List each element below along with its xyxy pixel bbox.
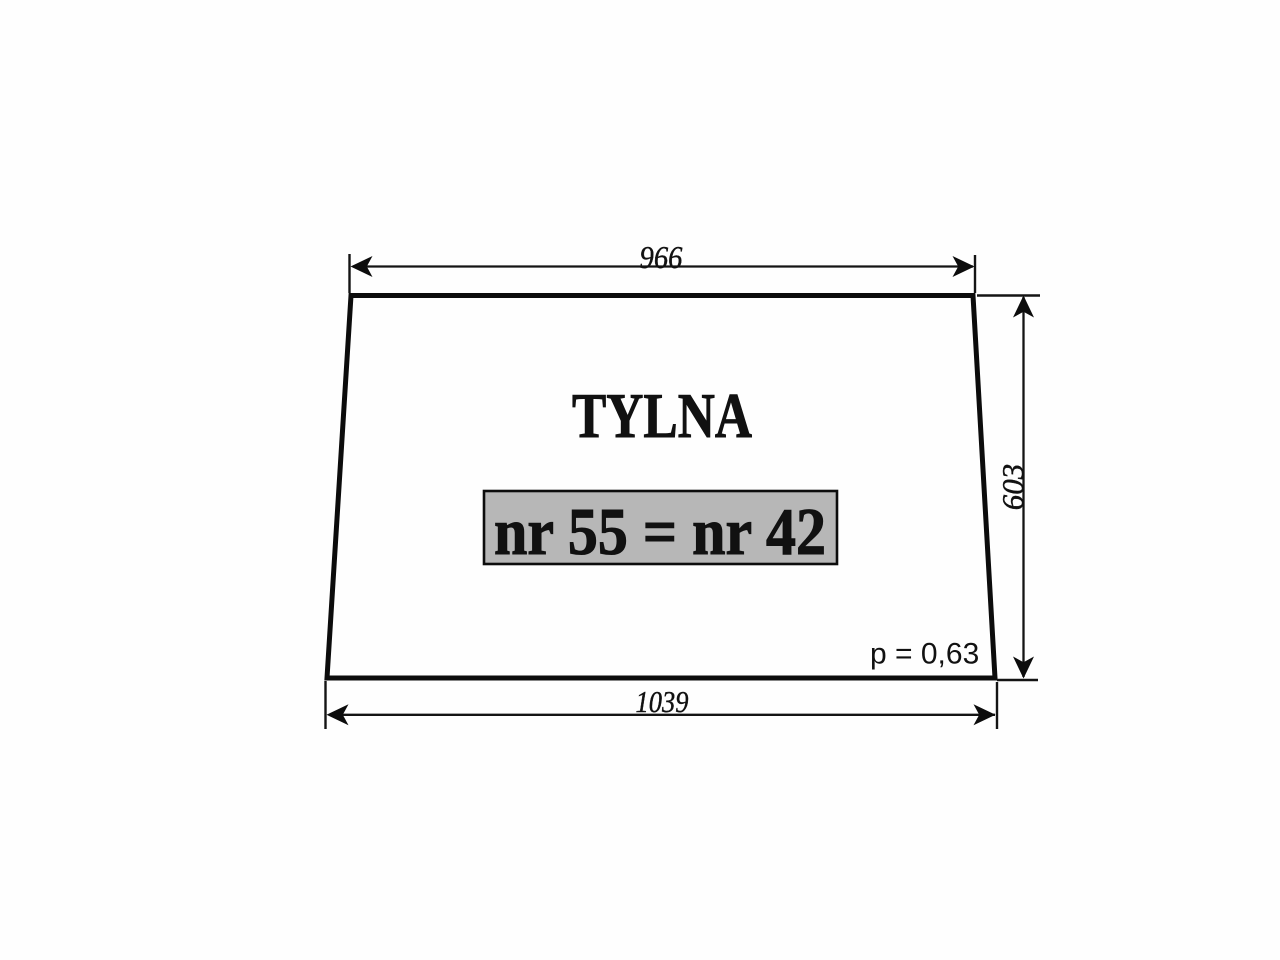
svg-text:603: 603 [995,464,1030,511]
svg-text:nr 55 = nr 42: nr 55 = nr 42 [494,495,826,569]
svg-text:966: 966 [640,239,683,275]
svg-text:1039: 1039 [636,684,689,719]
svg-text:TYLNA: TYLNA [572,381,752,451]
svg-text:p = 0,63: p = 0,63 [870,638,979,671]
